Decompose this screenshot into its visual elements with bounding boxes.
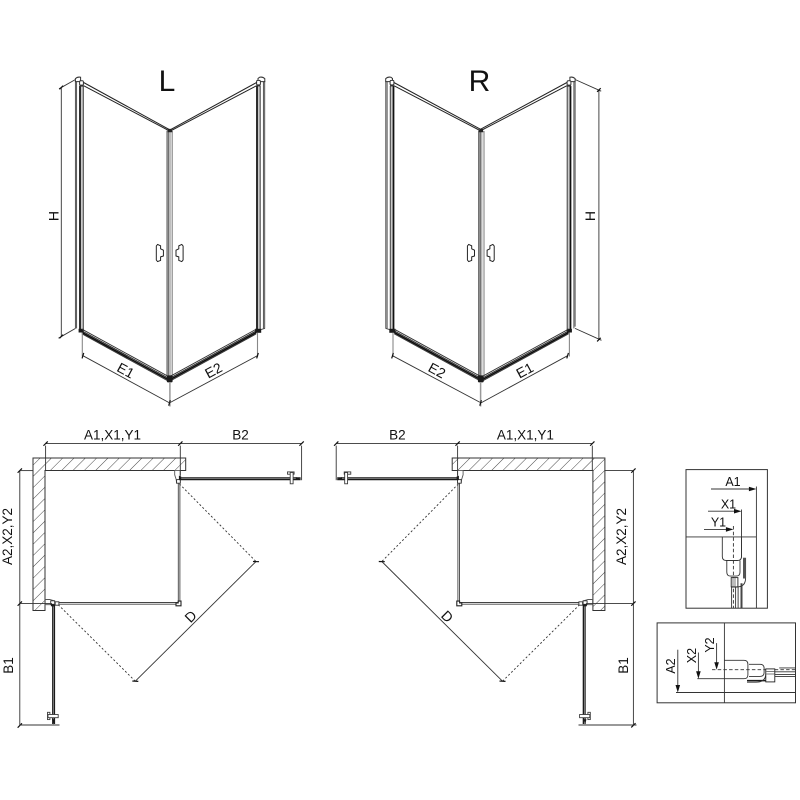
svg-text:H: H — [46, 211, 62, 221]
svg-text:A1,X1,Y1: A1,X1,Y1 — [84, 428, 141, 443]
svg-text:B2: B2 — [232, 428, 249, 443]
svg-text:B2: B2 — [389, 428, 406, 443]
svg-text:H: H — [582, 211, 598, 221]
svg-text:B1: B1 — [1, 657, 16, 674]
svg-text:Y2: Y2 — [703, 637, 717, 652]
svg-text:A1,X1,Y1: A1,X1,Y1 — [497, 428, 554, 443]
svg-text:A1: A1 — [725, 475, 740, 489]
svg-text:B1: B1 — [616, 657, 631, 674]
svg-text:A2,X2,Y2: A2,X2,Y2 — [614, 508, 629, 565]
svg-text:Y1: Y1 — [711, 516, 726, 530]
svg-text:L: L — [159, 65, 176, 98]
svg-text:R: R — [469, 65, 491, 98]
svg-text:X1: X1 — [721, 497, 736, 511]
svg-text:A2,X2,Y2: A2,X2,Y2 — [0, 508, 15, 565]
svg-text:X2: X2 — [685, 648, 699, 663]
svg-text:A2: A2 — [664, 658, 678, 673]
